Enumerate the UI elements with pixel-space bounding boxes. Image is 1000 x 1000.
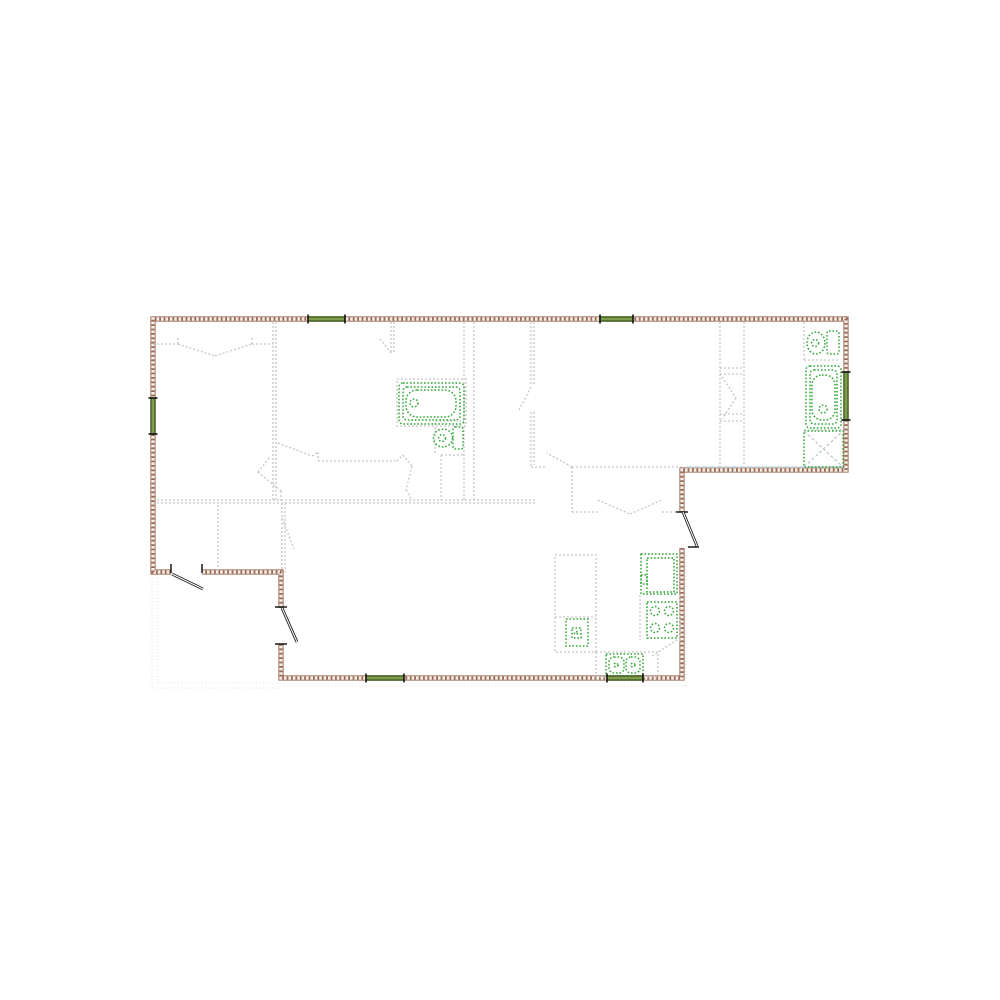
hallbath-door-leaf	[380, 339, 391, 353]
hall-angle-8	[406, 490, 412, 500]
exterior-wall-main-core	[153, 319, 846, 572]
bedroom2-door-leaf	[519, 387, 531, 410]
patio-outline-outer	[152, 574, 284, 688]
side-door-leaf-inner	[282, 608, 297, 642]
exterior-wall-main-hatch	[153, 319, 846, 572]
bedroom1-closet-door-a	[178, 344, 215, 356]
exterior-wall-left-step	[202, 572, 281, 608]
master-closet-door-b	[722, 398, 736, 419]
master-door-leaf	[547, 453, 572, 467]
hall-angle-2	[312, 452, 318, 456]
hall-angle-1	[278, 443, 312, 456]
stove-burner-4	[665, 624, 674, 633]
entry-closet-door-a	[598, 500, 630, 514]
master-toilet-tank	[827, 331, 839, 354]
kitchen-corner-diagonal	[652, 638, 680, 656]
stove-outline	[647, 602, 677, 638]
exterior-wall-main	[153, 319, 846, 572]
stove-burner-3	[651, 624, 660, 633]
exterior-wall-left-step-hatch	[202, 572, 281, 608]
floor-plan-page	[0, 0, 1000, 1000]
hall-toilet-bowl	[434, 429, 453, 447]
hall-angle-7	[406, 466, 412, 490]
hall-angle-6	[403, 455, 412, 466]
hall-angle-9	[258, 457, 270, 472]
bedroom1-closet-door-b	[215, 344, 252, 356]
hall-toilet-drain	[439, 435, 446, 442]
kitchen-sink-basin-1	[609, 657, 624, 673]
fridge-body	[647, 558, 674, 592]
master-closet-door-a	[722, 377, 736, 398]
master-toilet-drain	[812, 340, 819, 347]
master-toilet-bowl	[807, 332, 825, 354]
hall-angle-10	[258, 472, 281, 491]
patio-outline-inner	[158, 574, 281, 683]
hall-bathtub-basin	[406, 390, 456, 417]
exterior-wall-left-step-core	[202, 572, 281, 608]
stove-burner-1	[651, 607, 660, 616]
front-door-leaf-inner	[683, 512, 697, 546]
dishwasher-dot	[575, 632, 578, 635]
entry-closet-door-b	[630, 500, 662, 514]
hall-toilet-tank	[453, 427, 463, 449]
kitchen-sink-basin-2	[626, 657, 640, 673]
master-bathtub-basin	[812, 375, 835, 420]
patio-door-leaf-inner	[172, 574, 203, 589]
floor-plan-svg	[0, 0, 1000, 1000]
lower-left-door-leaf	[282, 518, 294, 549]
fridge-handle	[641, 575, 647, 584]
stove-burner-2	[665, 607, 674, 616]
hall-angle-5	[397, 455, 403, 461]
dishwasher-glyph	[572, 628, 581, 638]
